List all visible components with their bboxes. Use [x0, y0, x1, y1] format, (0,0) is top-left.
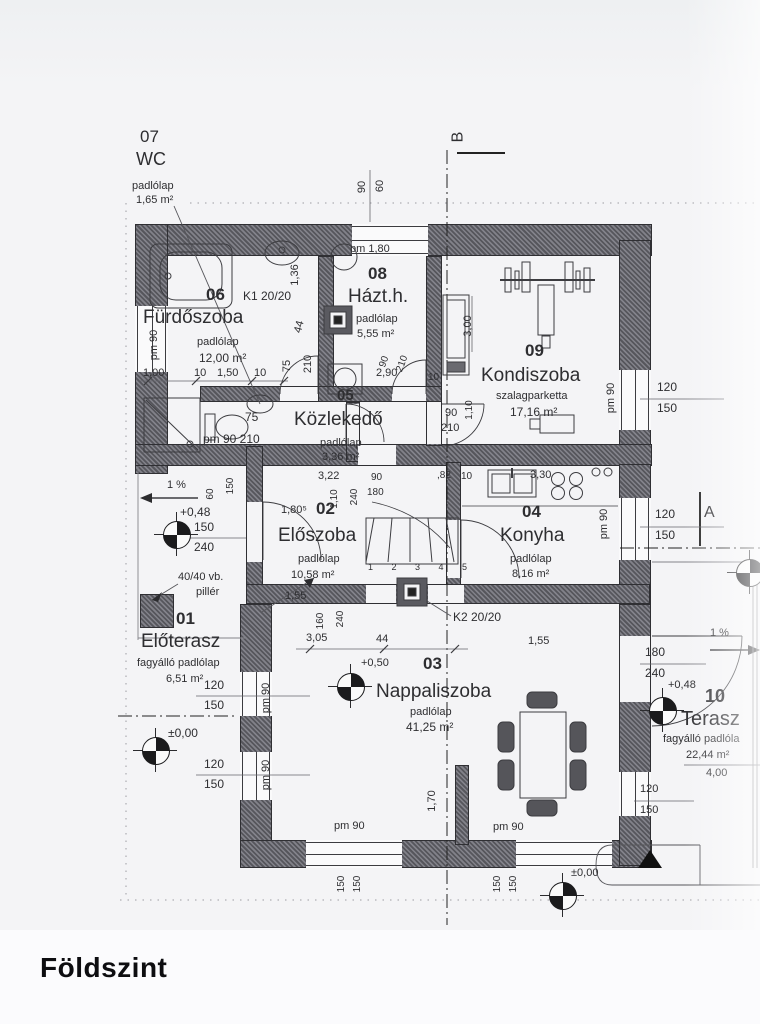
entry-step-triangle — [638, 850, 662, 868]
pm90-s2: pm 90 — [493, 822, 524, 834]
dim-150-s2a: 150 — [493, 876, 504, 893]
room04-floor: padlólap — [510, 554, 552, 566]
dim-90-p: 90 — [371, 473, 382, 484]
dim-3-00: 3,00 — [463, 315, 475, 336]
room08-name: Házt.h. — [348, 287, 408, 307]
dim-3-22: 3,22 — [318, 471, 339, 483]
dim-3-05: 3,05 — [306, 633, 327, 645]
dim-150-eb: 150 — [204, 778, 224, 791]
dim-1-80-5: 1,80⁵ — [281, 505, 307, 517]
room08-area: 5,55 m² — [357, 329, 394, 341]
dim-120-ea: 120 — [204, 679, 224, 692]
dim-1-55-e: 1,55 — [285, 591, 306, 603]
room06-floor: padlólap — [197, 337, 239, 349]
dim-180-p: 180 — [367, 488, 384, 499]
room02-area: 10,58 m² — [291, 570, 334, 582]
room09-name: Kondiszoba — [481, 366, 580, 386]
level-entry-circle — [163, 521, 191, 549]
entry-step-contour — [596, 845, 760, 885]
dim-240-t: 240 — [645, 667, 665, 680]
dim-pm90-210-wc: pm 90 210 — [203, 433, 260, 446]
room03-number: 03 — [423, 655, 442, 673]
room01-name: Előterasz — [141, 632, 220, 652]
dining-chairs — [498, 692, 586, 816]
section-b-label: B — [451, 132, 468, 143]
room03-area: 41,25 m² — [406, 721, 453, 734]
dim-120-tr: 120 — [640, 784, 658, 796]
dim-150-s1b: 150 — [353, 876, 364, 893]
dim-10-p: 10 — [461, 472, 472, 483]
kitchen-sink — [488, 468, 536, 497]
dim-150-kon: 150 — [657, 402, 677, 415]
floor-title: Földszint — [40, 952, 167, 984]
room07-area: 1,65 m² — [136, 195, 173, 207]
k2-label: K2 20/20 — [453, 611, 501, 624]
room02-number: 02 — [316, 500, 335, 518]
weight-bench — [500, 262, 595, 348]
dim-150-l: 150 — [226, 478, 237, 495]
pillar-note-1: 40/40 vb. — [178, 572, 223, 584]
level-bottom-right-circle — [549, 882, 577, 910]
pm90-konyha: pm 90 — [599, 509, 611, 540]
level-nappali — [328, 664, 372, 708]
level-bottom-right — [540, 873, 584, 917]
dim-1-50: 1,50 — [217, 368, 238, 380]
dim-150-tr: 150 — [640, 805, 658, 817]
dim-pm-1-80: pm 1,80 — [350, 244, 390, 256]
dining-table — [520, 712, 566, 798]
dim-240-p: 240 — [350, 489, 361, 506]
room10-number: 10 — [705, 687, 725, 706]
room10-name: Terasz — [681, 709, 740, 730]
room06-name: Fürdőszoba — [143, 308, 243, 328]
room02-floor: padlólap — [298, 554, 340, 566]
room09-number: 09 — [525, 342, 544, 360]
stair-numbers: 1 2 3 4 5 — [368, 563, 475, 572]
stairs — [366, 502, 458, 564]
pm90-kondi: pm 90 — [606, 383, 618, 414]
washbasin-furdo — [265, 241, 299, 265]
room06-number: 06 — [206, 286, 225, 304]
dim-240-e: 240 — [336, 611, 347, 628]
room03-floor: padlólap — [410, 707, 452, 719]
room07-number: 07 — [140, 128, 159, 146]
room02-name: Előszoba — [278, 526, 356, 546]
pm90-s1: pm 90 — [334, 821, 365, 833]
pm90-eb: pm 90 — [261, 760, 273, 791]
room05-number: 05 — [337, 388, 354, 404]
sheet-footer: Földszint — [0, 930, 760, 1024]
level-nappali-circle — [337, 673, 365, 701]
dim-210-f: 210 — [303, 355, 315, 373]
room05-floor: padlólap — [320, 438, 362, 450]
slope-left-label: 1 % — [167, 480, 186, 492]
dim-k1: K1 20/20 — [243, 290, 291, 303]
room01-area: 6,51 m² — [166, 674, 203, 686]
dim-top-90: 90 — [357, 181, 369, 193]
drawing-paper: 07WCpadlólap1,65 m²9060B06K1 20/20Fürdős… — [0, 0, 760, 932]
room03-name: Nappaliszoba — [376, 682, 491, 702]
chimney-k1 — [324, 306, 352, 334]
dim-75-f: 75 — [282, 360, 294, 372]
dim-10-h: 10 — [428, 373, 439, 384]
room09-area: 17,16 m² — [510, 406, 557, 419]
dim-82: ,82 — [437, 471, 451, 482]
pm90-furdo: pm 90 — [149, 330, 161, 361]
dim-120-kon: 120 — [657, 381, 677, 394]
dim-1-70: 1,70 — [427, 790, 439, 811]
dim-120-kny: 120 — [655, 508, 675, 521]
scanned-floor-plan: { "title": "Földszint", "colors": { "pap… — [0, 0, 760, 1024]
dim-75-wc: 75 — [245, 411, 258, 424]
slope-arrow-right — [710, 645, 760, 655]
dim-150-s2b: 150 — [509, 876, 520, 893]
room07-floor: padlólap — [132, 181, 174, 193]
chimney-k2 — [397, 578, 427, 606]
room09-floor: szalagparketta — [496, 391, 568, 403]
stove — [552, 468, 613, 500]
dim-150-kny: 150 — [655, 529, 675, 542]
dim-10-b: 10 — [254, 368, 266, 380]
level-eloterasz — [133, 728, 177, 772]
dim-4-00: 4,00 — [706, 768, 727, 780]
room10-floor: fagyálló padlóla — [663, 734, 739, 746]
level-eloterasz-circle — [142, 737, 170, 765]
dim-90-koz: 90 — [445, 408, 457, 420]
dim-150-ea: 150 — [204, 699, 224, 712]
level-right-mid-circle — [736, 559, 760, 587]
dim-150-s1a: 150 — [337, 876, 348, 893]
pillar-note-2: pillér — [196, 587, 219, 599]
dim-1-10-kon: 1,10 — [465, 400, 476, 419]
room01-number: 01 — [176, 610, 195, 628]
dim-1-36: 1,36 — [290, 264, 302, 285]
room04-number: 04 — [522, 503, 541, 521]
room04-name: Konyha — [500, 526, 564, 546]
slope-arrow-left — [140, 493, 198, 503]
dim-1-55-t: 1,55 — [528, 636, 549, 648]
room08-number: 08 — [368, 265, 387, 283]
dim-3-30: 3,30 — [530, 470, 551, 482]
dim-44-e: 44 — [376, 634, 388, 646]
dim-210-koz: 210 — [441, 423, 459, 435]
room05-name: Közlekedő — [294, 410, 383, 430]
dim-top-60: 60 — [375, 180, 387, 192]
dim-60-l: 60 — [206, 488, 217, 499]
level-right-mid — [727, 550, 760, 594]
section-a-label: A — [704, 505, 715, 522]
room07-name: WC — [136, 150, 166, 169]
room08-floor: padlólap — [356, 314, 398, 326]
level-entry — [154, 512, 198, 556]
room04-area: 8,16 m² — [512, 569, 549, 581]
dim-10-a: 10 — [194, 368, 206, 380]
slope-right-label: 1 % — [710, 628, 729, 640]
level-terasz — [640, 688, 684, 732]
dim-160-e: 160 — [316, 613, 327, 630]
dim-1-00: 1,00 — [143, 368, 164, 380]
pm90-ea: pm 90 — [261, 683, 273, 714]
room10-area: 22,44 m² — [686, 750, 729, 762]
dim-120-eb: 120 — [204, 758, 224, 771]
room06-area: 12,00 m² — [199, 352, 246, 365]
room05-area: 3,36 m² — [322, 452, 359, 464]
room01-floor: fagyálló padlólap — [137, 658, 220, 670]
shower — [144, 398, 200, 452]
dim-180-t: 180 — [645, 646, 665, 659]
level-terasz-circle — [649, 697, 677, 725]
